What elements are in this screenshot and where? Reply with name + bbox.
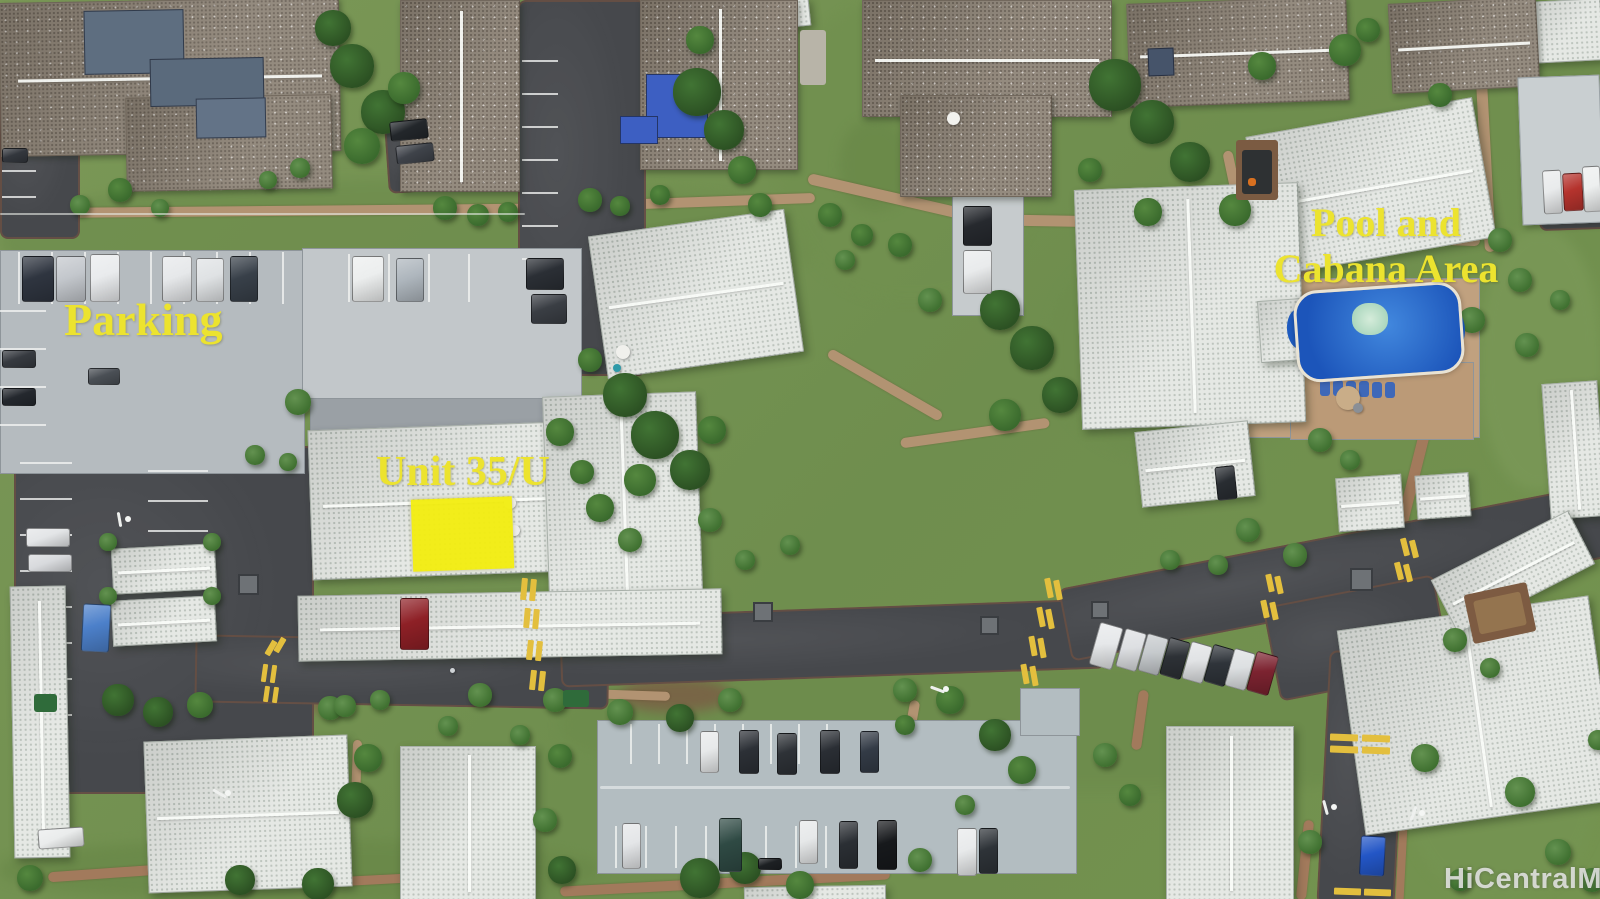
tree	[388, 72, 420, 104]
tree	[1283, 543, 1307, 567]
car	[37, 826, 84, 849]
car	[531, 294, 567, 324]
parking-stall-line	[630, 724, 632, 764]
street-lamp-head	[943, 686, 949, 692]
tree	[533, 808, 557, 832]
tree	[245, 445, 265, 465]
tree	[285, 389, 311, 415]
roof-ridge	[1420, 494, 1467, 500]
site-feature	[600, 786, 1070, 789]
car	[400, 598, 429, 650]
roof-ridge	[468, 755, 471, 893]
road-marking-yellow	[1364, 889, 1391, 897]
parking-stall-line	[645, 826, 647, 868]
roof-ridge	[1186, 199, 1196, 413]
roof-ridge	[38, 600, 45, 843]
roof-ridge	[118, 619, 210, 627]
site-dot	[450, 668, 455, 673]
tree	[1130, 100, 1174, 144]
tree	[546, 418, 574, 446]
car	[1562, 173, 1584, 212]
roof-ridge	[609, 282, 784, 310]
site-dot	[947, 112, 960, 125]
car	[1582, 166, 1600, 213]
tree	[818, 203, 842, 227]
tree	[980, 290, 1020, 330]
tree	[610, 196, 630, 216]
parking-stall-line	[770, 724, 772, 764]
street-lamp-head	[1419, 810, 1425, 816]
roof-ridge	[118, 567, 210, 575]
tree	[1134, 198, 1162, 226]
pool-island	[1352, 303, 1388, 335]
tree	[586, 494, 614, 522]
tree	[893, 678, 917, 702]
tree	[895, 715, 915, 735]
tree	[225, 865, 255, 895]
car	[526, 258, 564, 290]
tree	[1515, 333, 1539, 357]
tree	[979, 719, 1011, 751]
tree	[259, 171, 277, 189]
tree	[99, 533, 117, 551]
tree	[704, 110, 744, 150]
car	[2, 148, 28, 163]
aerial-scene	[0, 0, 1600, 899]
road-marking-yellow	[1362, 735, 1390, 743]
site-feature	[1372, 382, 1382, 398]
roof-ridge	[460, 11, 463, 182]
parking-stall-line	[20, 498, 72, 500]
tree	[1042, 377, 1078, 413]
parking-label: Parking	[64, 293, 222, 346]
roof-building	[111, 595, 217, 646]
car	[979, 828, 998, 874]
car	[395, 142, 435, 165]
tree	[1248, 52, 1276, 80]
tree	[203, 587, 221, 605]
tree	[99, 587, 117, 605]
tree	[548, 744, 572, 768]
roof-ridge	[157, 811, 339, 820]
car	[957, 828, 977, 876]
car	[963, 206, 992, 246]
parking-stall-line	[798, 724, 800, 764]
car	[700, 731, 719, 773]
road-marking-yellow	[1334, 888, 1361, 896]
parking-stall-line	[428, 254, 430, 302]
tree	[670, 450, 710, 490]
parking-deck	[1020, 688, 1080, 736]
site-feature	[1359, 381, 1369, 397]
tree	[337, 782, 373, 818]
roof-building	[1335, 474, 1405, 532]
car	[28, 554, 72, 572]
pool-label-line1: Pool and	[1258, 200, 1514, 246]
car	[1542, 170, 1563, 215]
tree	[1308, 428, 1332, 452]
solar-panel-array	[620, 116, 658, 144]
tree	[1010, 326, 1054, 370]
tree	[468, 683, 492, 707]
car	[26, 528, 70, 547]
pool-label-line2: Cabana Area	[1258, 246, 1514, 292]
site-feature	[1385, 382, 1395, 398]
parking-stall-line	[615, 826, 617, 868]
car	[839, 821, 858, 869]
tree	[673, 68, 721, 116]
tree	[17, 865, 43, 891]
tree	[334, 695, 356, 717]
roof-building	[400, 746, 536, 899]
tree	[302, 868, 334, 899]
roof-building	[1134, 420, 1255, 507]
tree	[631, 411, 679, 459]
car	[877, 820, 897, 870]
roof-building	[1415, 472, 1472, 520]
road-marking-yellow	[1362, 747, 1390, 755]
site-feature	[1242, 150, 1272, 194]
car	[963, 250, 992, 294]
tree	[835, 250, 855, 270]
tree	[1480, 658, 1500, 678]
tree	[1089, 59, 1141, 111]
parking-stall-line	[522, 159, 558, 161]
roof-building	[10, 586, 71, 859]
tree	[1298, 830, 1322, 854]
tree	[1550, 290, 1570, 310]
tree	[187, 692, 213, 718]
tree	[143, 697, 173, 727]
tree	[1093, 743, 1117, 767]
utility-pad	[753, 602, 773, 622]
tree	[570, 460, 594, 484]
parking-stall-line	[20, 462, 72, 464]
tree	[578, 348, 602, 372]
brown-roof-building	[900, 95, 1052, 197]
tree	[603, 373, 647, 417]
tree	[433, 196, 457, 220]
car	[396, 258, 424, 302]
tree	[1008, 756, 1036, 784]
tree	[955, 795, 975, 815]
parking-stall-line	[522, 126, 558, 128]
tree	[748, 193, 772, 217]
site-feature	[1320, 380, 1330, 396]
tree	[1160, 550, 1180, 570]
parking-stall-line	[388, 254, 390, 302]
parking-stall-line	[0, 424, 46, 426]
site-feature	[0, 213, 525, 215]
tree	[354, 744, 382, 772]
roof-building	[111, 543, 217, 594]
tree	[780, 535, 800, 555]
tree	[279, 453, 297, 471]
tree	[330, 44, 374, 88]
tree	[1119, 784, 1141, 806]
roof-building	[297, 588, 722, 661]
tree	[467, 204, 489, 226]
tree	[510, 725, 530, 745]
tree	[918, 288, 942, 312]
parking-stall-line	[825, 826, 827, 868]
tree	[1505, 777, 1535, 807]
roof-ridge	[875, 59, 1098, 62]
tree	[290, 158, 310, 178]
roof-ridge	[1230, 736, 1233, 892]
tree	[344, 128, 380, 164]
tree	[1329, 34, 1361, 66]
tree	[315, 10, 351, 46]
street-lamp-head	[225, 790, 231, 796]
tree	[1443, 628, 1467, 652]
road-marking-yellow	[1330, 734, 1358, 742]
roof-building	[1337, 595, 1600, 835]
utility-pad	[980, 616, 999, 635]
tree	[370, 690, 390, 710]
parking-stall-line	[795, 826, 797, 868]
parking-stall-line	[675, 826, 677, 868]
utility-pad	[1350, 568, 1373, 591]
site-feature	[1248, 178, 1256, 186]
site-dot	[1353, 403, 1363, 413]
parking-stall-line	[148, 530, 208, 532]
car	[799, 820, 818, 864]
car	[739, 730, 759, 774]
site-feature	[800, 30, 826, 85]
car	[22, 256, 54, 302]
roof-ridge	[1398, 42, 1529, 52]
parking-stall-line	[468, 254, 470, 302]
car	[2, 388, 36, 406]
car	[81, 603, 111, 652]
car	[1359, 835, 1386, 876]
tree	[698, 416, 726, 444]
parking-stall-line	[148, 470, 208, 472]
roof-building	[744, 885, 886, 899]
site-dot	[613, 364, 621, 372]
car	[352, 256, 384, 302]
solar-panel-array	[196, 97, 267, 138]
parking-stall-line	[148, 500, 208, 502]
parking-stall-line	[658, 724, 660, 764]
site-dot	[616, 345, 630, 359]
car	[389, 118, 429, 142]
tree	[607, 699, 633, 725]
tree	[908, 848, 932, 872]
roof-building	[1541, 380, 1600, 520]
tree	[666, 704, 694, 732]
roof-ridge	[1570, 390, 1581, 511]
tree	[1236, 518, 1260, 542]
street-lamp-head	[1331, 804, 1337, 810]
parking-stall-line	[18, 252, 20, 304]
tree	[1411, 744, 1439, 772]
parking-stall-line	[2, 196, 36, 198]
site-feature	[34, 694, 57, 712]
car	[2, 350, 36, 368]
roof-ridge	[1341, 501, 1399, 508]
tree	[1170, 142, 1210, 182]
tree	[989, 399, 1021, 431]
tree	[1545, 839, 1571, 865]
tree	[108, 178, 132, 202]
car	[1214, 465, 1237, 501]
car	[820, 730, 840, 774]
tree	[548, 856, 576, 884]
tree	[624, 464, 656, 496]
tree	[680, 858, 720, 898]
car	[777, 733, 797, 775]
tree	[203, 533, 221, 551]
street-lamp-head	[125, 516, 131, 522]
car	[719, 818, 742, 872]
tree	[1078, 158, 1102, 182]
tree	[1428, 83, 1452, 107]
roof-building	[1166, 726, 1294, 899]
solar-panel-array	[1148, 48, 1175, 77]
car	[622, 823, 641, 869]
tree	[851, 224, 873, 246]
car	[860, 731, 879, 773]
tree	[1208, 555, 1228, 575]
tree	[698, 508, 722, 532]
parking-stall-line	[0, 310, 46, 312]
car	[88, 368, 120, 385]
car	[230, 256, 258, 302]
pool-cabana-label: Pool and Cabana Area	[1258, 200, 1514, 292]
parking-stall-line	[522, 192, 558, 194]
tree	[498, 202, 518, 222]
tree	[578, 188, 602, 212]
utility-pad	[238, 574, 259, 595]
site-feature	[563, 690, 589, 707]
tree	[70, 195, 90, 215]
aerial-photo-canvas: Parking Pool and Cabana Area Unit 35/U H…	[0, 0, 1600, 899]
parking-stall-line	[522, 60, 558, 62]
unit-highlight-rectangle	[411, 496, 514, 571]
roof-ridge	[320, 622, 700, 632]
parking-stall-line	[2, 170, 36, 172]
walking-path	[900, 418, 1050, 449]
utility-pad	[1091, 601, 1109, 619]
parking-stall-line	[282, 252, 284, 304]
roof-ridge	[1464, 624, 1493, 807]
parking-stall-line	[522, 93, 558, 95]
car	[758, 858, 782, 870]
tree	[1588, 730, 1600, 750]
tree	[786, 871, 814, 899]
tree	[718, 688, 742, 712]
tree	[1340, 450, 1360, 470]
tree	[438, 716, 458, 736]
tree	[650, 185, 670, 205]
tree	[728, 156, 756, 184]
parking-stall-line	[522, 225, 558, 227]
walking-path	[826, 348, 944, 422]
parking-stall-line	[348, 254, 350, 302]
tree	[735, 550, 755, 570]
tree	[1356, 18, 1380, 42]
roof-ridge	[619, 406, 629, 609]
tree	[618, 528, 642, 552]
mls-watermark: HiCentralMLS	[1444, 863, 1600, 896]
unit-label: Unit 35/U	[376, 448, 550, 496]
road-marking-yellow	[1330, 746, 1358, 754]
tree	[102, 684, 134, 716]
tree	[888, 233, 912, 257]
tree	[686, 26, 714, 54]
